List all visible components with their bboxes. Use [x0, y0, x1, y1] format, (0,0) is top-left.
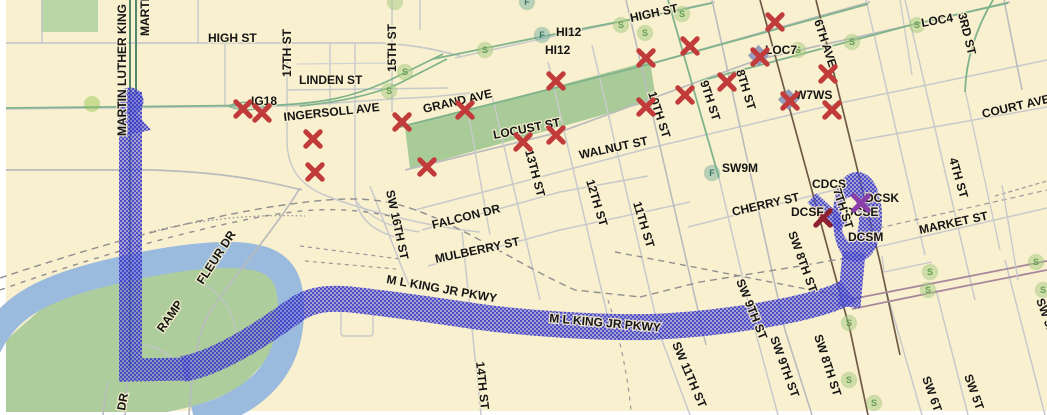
svg-text:HIGH ST: HIGH ST: [208, 31, 257, 45]
svg-text:SW9M: SW9M: [722, 161, 758, 175]
svg-text:S: S: [914, 20, 920, 30]
svg-text:DCSF: DCSF: [791, 205, 824, 219]
svg-text:S: S: [846, 318, 852, 328]
svg-text:S: S: [618, 20, 624, 30]
svg-text:S: S: [871, 398, 877, 408]
svg-text:DCSM: DCSM: [848, 230, 883, 244]
svg-text:S: S: [927, 267, 933, 277]
svg-text:LINDEN ST: LINDEN ST: [299, 73, 363, 87]
svg-text:MARTIN LUTHER KING: MARTIN LUTHER KING: [115, 4, 129, 136]
svg-text:S: S: [849, 37, 855, 47]
svg-text:S: S: [1040, 285, 1046, 295]
svg-text:W7WS: W7WS: [795, 88, 832, 102]
svg-text:F: F: [524, 0, 530, 7]
svg-text:LOC7: LOC7: [765, 43, 797, 57]
svg-text:S: S: [846, 375, 852, 385]
svg-text:S: S: [386, 86, 392, 96]
svg-text:S: S: [679, 9, 685, 19]
svg-text:S: S: [1033, 257, 1039, 267]
svg-text:HI12: HI12: [556, 25, 582, 39]
svg-text:15TH ST: 15TH ST: [385, 23, 399, 72]
svg-text:F: F: [539, 30, 545, 40]
svg-text:S: S: [925, 285, 931, 295]
svg-text:17TH ST: 17TH ST: [280, 28, 294, 77]
svg-text:HI12: HI12: [545, 43, 571, 57]
svg-text:S: S: [402, 67, 408, 77]
svg-text:DCSK: DCSK: [865, 191, 899, 205]
svg-text:F: F: [709, 168, 715, 178]
svg-text:MARTI: MARTI: [138, 0, 152, 36]
svg-text:S: S: [482, 45, 488, 55]
svg-text:S: S: [642, 28, 648, 38]
